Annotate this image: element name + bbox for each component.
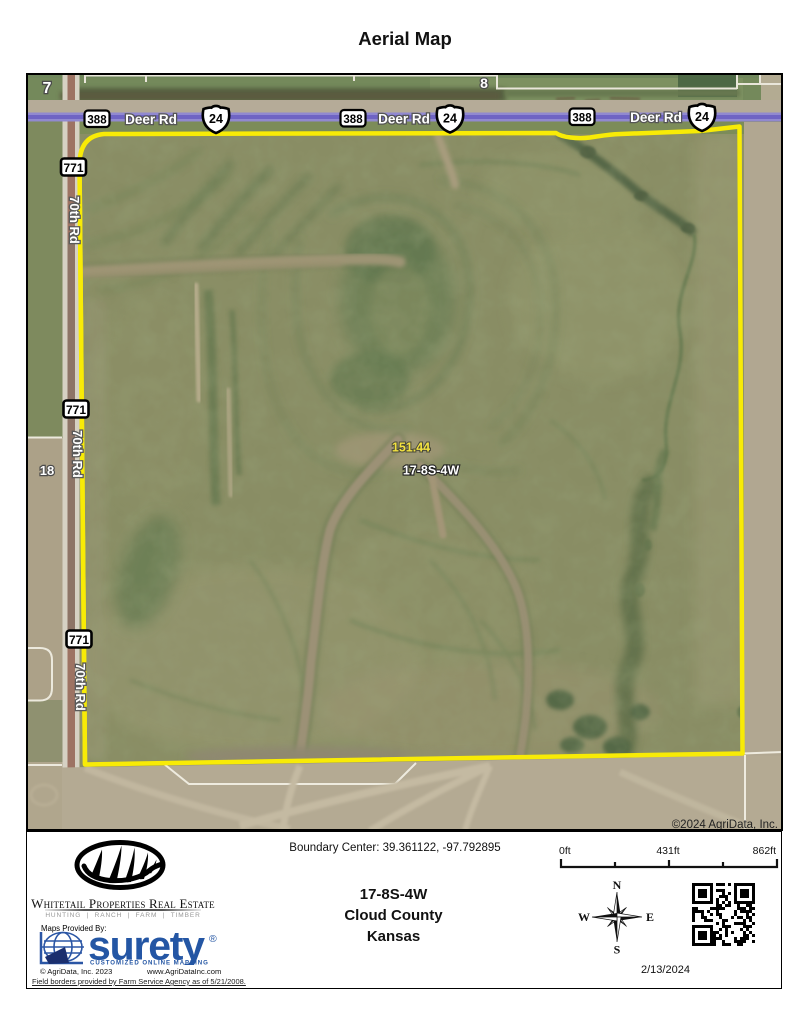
svg-text:®: ® bbox=[209, 933, 217, 945]
svg-text:70th Rd: 70th Rd bbox=[70, 430, 85, 478]
svg-text:771: 771 bbox=[69, 633, 89, 647]
svg-text:S: S bbox=[614, 943, 621, 957]
svg-text:70th Rd: 70th Rd bbox=[73, 663, 88, 711]
svg-text:E: E bbox=[646, 910, 654, 924]
svg-text:388: 388 bbox=[343, 114, 363, 126]
svg-text:18: 18 bbox=[40, 463, 54, 478]
svg-text:Deer Rd: Deer Rd bbox=[125, 112, 177, 127]
svg-text:771: 771 bbox=[63, 161, 83, 175]
svg-text:17-8S-4W: 17-8S-4W bbox=[403, 464, 459, 478]
svg-text:862ft: 862ft bbox=[753, 845, 776, 857]
svg-text:N: N bbox=[613, 878, 622, 892]
svg-text:151.44: 151.44 bbox=[392, 441, 430, 455]
svg-text:W: W bbox=[578, 910, 590, 924]
svg-text:388: 388 bbox=[572, 113, 592, 125]
svg-text:7: 7 bbox=[43, 80, 52, 97]
svg-text:388: 388 bbox=[87, 115, 107, 127]
svg-text:0ft: 0ft bbox=[559, 845, 571, 857]
svg-text:431ft: 431ft bbox=[656, 845, 679, 857]
svg-text:CUSTOMIZED ONLINE MAPPING: CUSTOMIZED ONLINE MAPPING bbox=[90, 960, 209, 966]
svg-text:70th Rd: 70th Rd bbox=[67, 196, 82, 244]
svg-text:Deer Rd: Deer Rd bbox=[630, 110, 682, 125]
svg-text:8: 8 bbox=[480, 75, 488, 91]
svg-text:Deer Rd: Deer Rd bbox=[378, 112, 430, 127]
svg-text:771: 771 bbox=[66, 403, 86, 417]
